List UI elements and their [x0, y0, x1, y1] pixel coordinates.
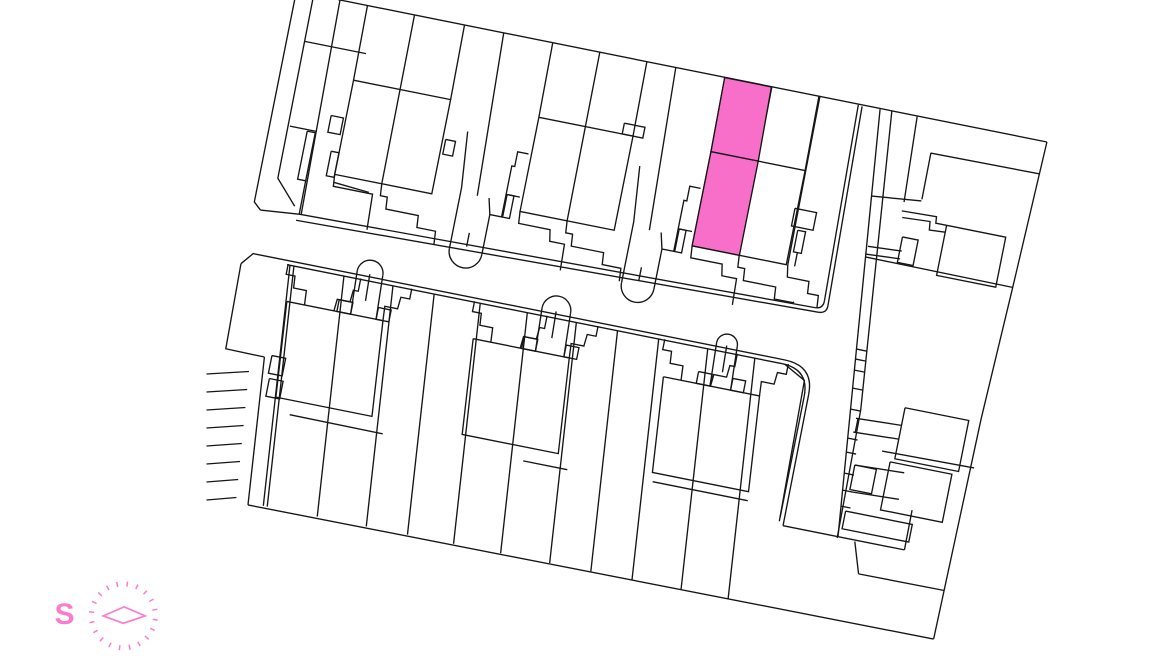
svg-text:S: S	[54, 598, 74, 631]
